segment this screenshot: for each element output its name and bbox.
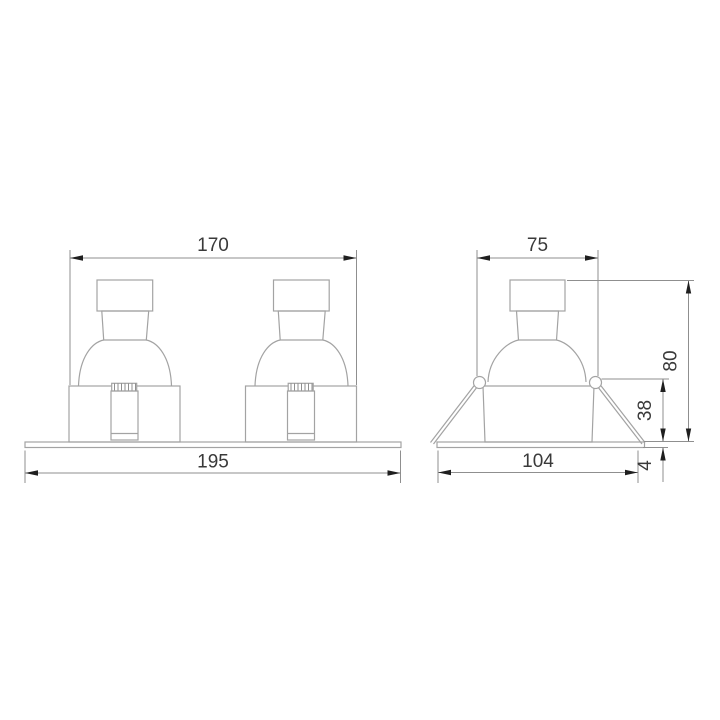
dim-label-38: 38 (635, 400, 656, 421)
arrow-right (344, 255, 357, 260)
spotlight-2 (246, 280, 357, 442)
bell-left-side (488, 340, 519, 382)
arrow-left (477, 255, 490, 260)
dimension-drawing: 170 195 (0, 0, 720, 720)
spring-clips (431, 385, 646, 445)
dim-label-4: 4 (635, 460, 656, 471)
arrow-right (585, 255, 598, 260)
arrow-right (388, 470, 401, 475)
dim-38: 38 (602, 379, 670, 442)
lamp-head-side (510, 280, 565, 311)
bell-left-1 (79, 340, 104, 386)
dim-195: 195 (25, 451, 401, 484)
front-view: 170 195 (25, 235, 401, 483)
dim-104: 104 (438, 451, 638, 484)
clip-pivot-right (590, 377, 602, 389)
socket-ribs-2 (288, 383, 313, 391)
arrow-up (660, 379, 665, 392)
clip-left-b (434, 387, 478, 445)
socket-ribs-1 (112, 383, 137, 391)
dim-170: 170 (70, 235, 357, 385)
arrow-down (686, 429, 691, 442)
dim-75: 75 (477, 235, 598, 376)
spotlight-1 (69, 280, 180, 442)
bell-right-1 (146, 340, 171, 386)
side-view: 75 104 80 38 (431, 235, 695, 483)
technical-drawing-canvas: 170 195 (0, 0, 720, 720)
clip-pivot-left (474, 377, 486, 389)
bell-right-2 (323, 340, 348, 386)
socket-rib-lines-1 (115, 383, 136, 391)
recessed-can (483, 386, 594, 442)
lamp-neck-side (517, 311, 559, 340)
dim-label-195: 195 (197, 452, 229, 473)
socket-rib-lines-2 (291, 383, 312, 391)
socket-body-1 (111, 391, 138, 440)
arrow-left (25, 470, 38, 475)
lamp-neck-2 (278, 311, 325, 340)
lamp-neck-1 (102, 311, 149, 340)
clip-left-a (431, 385, 476, 443)
arrow-left (438, 470, 451, 475)
bell-right-side (557, 340, 587, 382)
flange-plate-side (437, 442, 645, 448)
dim-label-104: 104 (522, 451, 554, 472)
lamp-head-1 (97, 280, 153, 311)
dim-label-170: 170 (197, 235, 229, 256)
arrow-up (660, 448, 665, 461)
socket-body-2 (288, 391, 315, 440)
arrow-up (686, 281, 691, 294)
bell-left-2 (255, 340, 280, 386)
dim-label-80: 80 (661, 350, 682, 371)
base-plate-front (25, 442, 401, 448)
dim-4: 4 (635, 448, 668, 483)
arrow-left (70, 255, 83, 260)
arrow-down (660, 429, 665, 442)
dim-label-75: 75 (527, 235, 548, 256)
dim-80: 80 (567, 281, 694, 442)
lamp-head-2 (274, 280, 330, 311)
